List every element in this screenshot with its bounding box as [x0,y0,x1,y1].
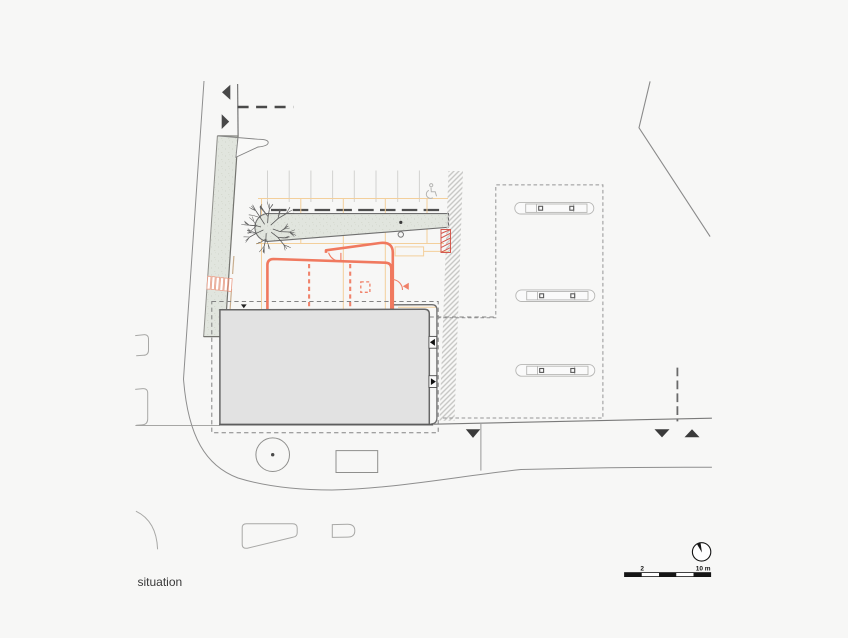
svg-text:situation: situation [138,575,183,589]
svg-text:10 m: 10 m [696,566,711,573]
svg-text:2: 2 [640,566,644,573]
